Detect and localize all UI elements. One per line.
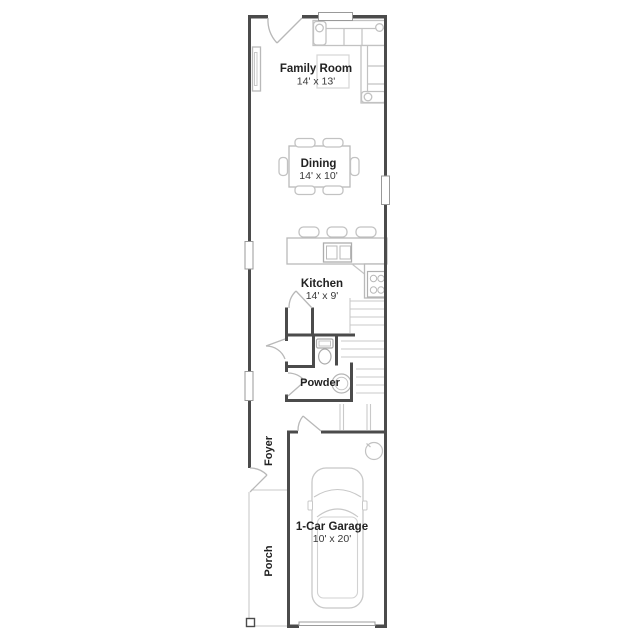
family-room-door <box>268 18 302 43</box>
family-room-dims: 14' x 13' <box>297 76 335 88</box>
bar-stools <box>299 227 376 237</box>
window <box>319 13 353 21</box>
window <box>382 176 390 205</box>
garage-door <box>299 622 375 626</box>
powder-label: Powder <box>300 377 340 389</box>
kitchen-label: Kitchen <box>301 278 343 290</box>
porch-label: Porch <box>263 545 275 576</box>
closet-door <box>266 339 285 359</box>
dining-dims: 14' x 10' <box>299 170 337 182</box>
floor-plan: Family Room 14' x 13' Dining 14' x 10' K… <box>0 0 640 640</box>
garage-label: 1-Car Garage <box>296 521 368 533</box>
window <box>245 242 253 270</box>
range <box>368 272 386 298</box>
garage-dims: 10' x 20' <box>313 533 351 545</box>
water-heater <box>366 443 383 460</box>
kitchen-dims: 14' x 9' <box>306 290 339 302</box>
porch-post <box>247 619 255 627</box>
island-sink <box>324 243 352 262</box>
garage-entry-door <box>298 416 321 431</box>
floor-plan-page: Family Room 14' x 13' Dining 14' x 10' K… <box>0 0 640 640</box>
window <box>245 372 253 401</box>
staircase <box>340 298 384 430</box>
toilet <box>317 339 334 364</box>
foyer-label: Foyer <box>263 435 275 466</box>
media-console <box>253 47 261 91</box>
family-room-label: Family Room <box>280 63 352 75</box>
front-door <box>250 468 267 492</box>
dining-label: Dining <box>301 158 337 170</box>
